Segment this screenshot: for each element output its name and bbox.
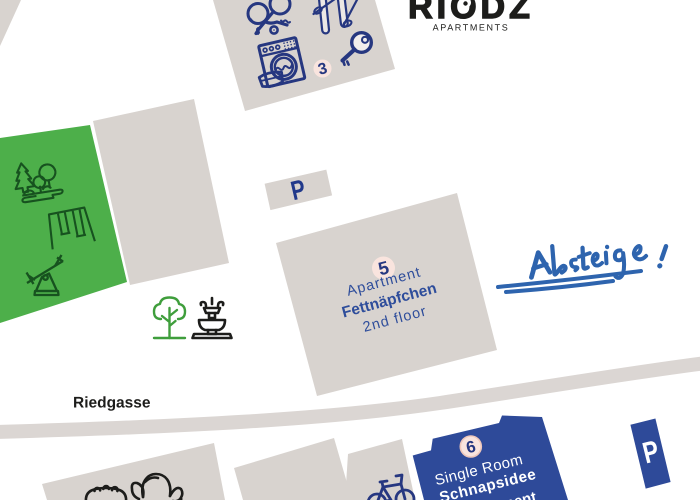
svg-text:Riedgasse: Riedgasse bbox=[73, 395, 151, 412]
svg-text:APARTMENTS: APARTMENTS bbox=[433, 23, 510, 33]
